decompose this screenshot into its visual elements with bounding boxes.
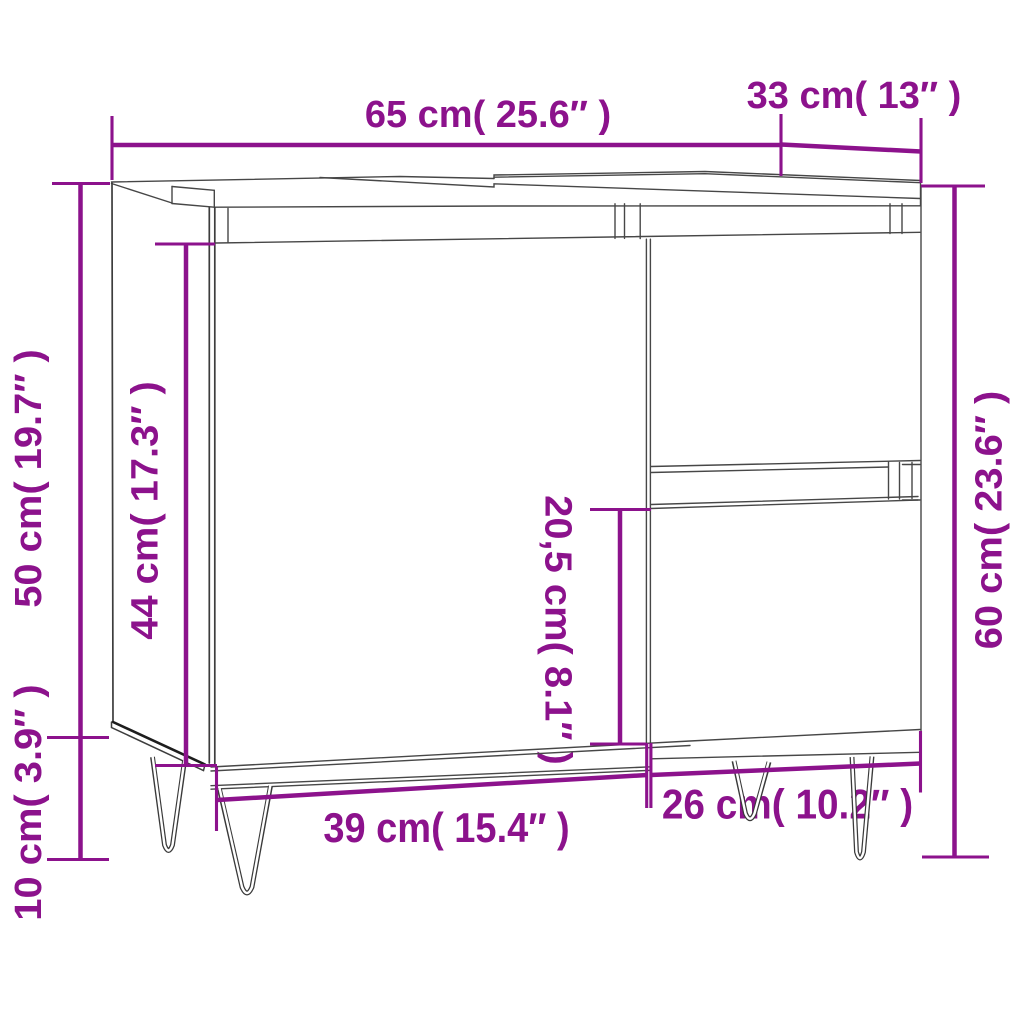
svg-text:39 cm( 15.4″ ): 39 cm( 15.4″ ) xyxy=(323,805,569,851)
svg-text:26 cm( 10.2″ ): 26 cm( 10.2″ ) xyxy=(662,780,913,828)
svg-text:44 cm( 17.3″ ): 44 cm( 17.3″ ) xyxy=(124,381,166,640)
svg-text:60 cm( 23.6″ ): 60 cm( 23.6″ ) xyxy=(968,391,1010,650)
svg-text:65 cm( 25.6″ ): 65 cm( 25.6″ ) xyxy=(365,94,611,136)
svg-text:10 cm( 3.9″ ): 10 cm( 3.9″ ) xyxy=(8,684,50,920)
svg-text:20,5 cm( 8.1″ ): 20,5 cm( 8.1″ ) xyxy=(537,495,579,765)
svg-text:50 cm( 19.7″ ): 50 cm( 19.7″ ) xyxy=(8,349,50,608)
svg-text:33 cm( 13″ ): 33 cm( 13″ ) xyxy=(747,75,962,117)
